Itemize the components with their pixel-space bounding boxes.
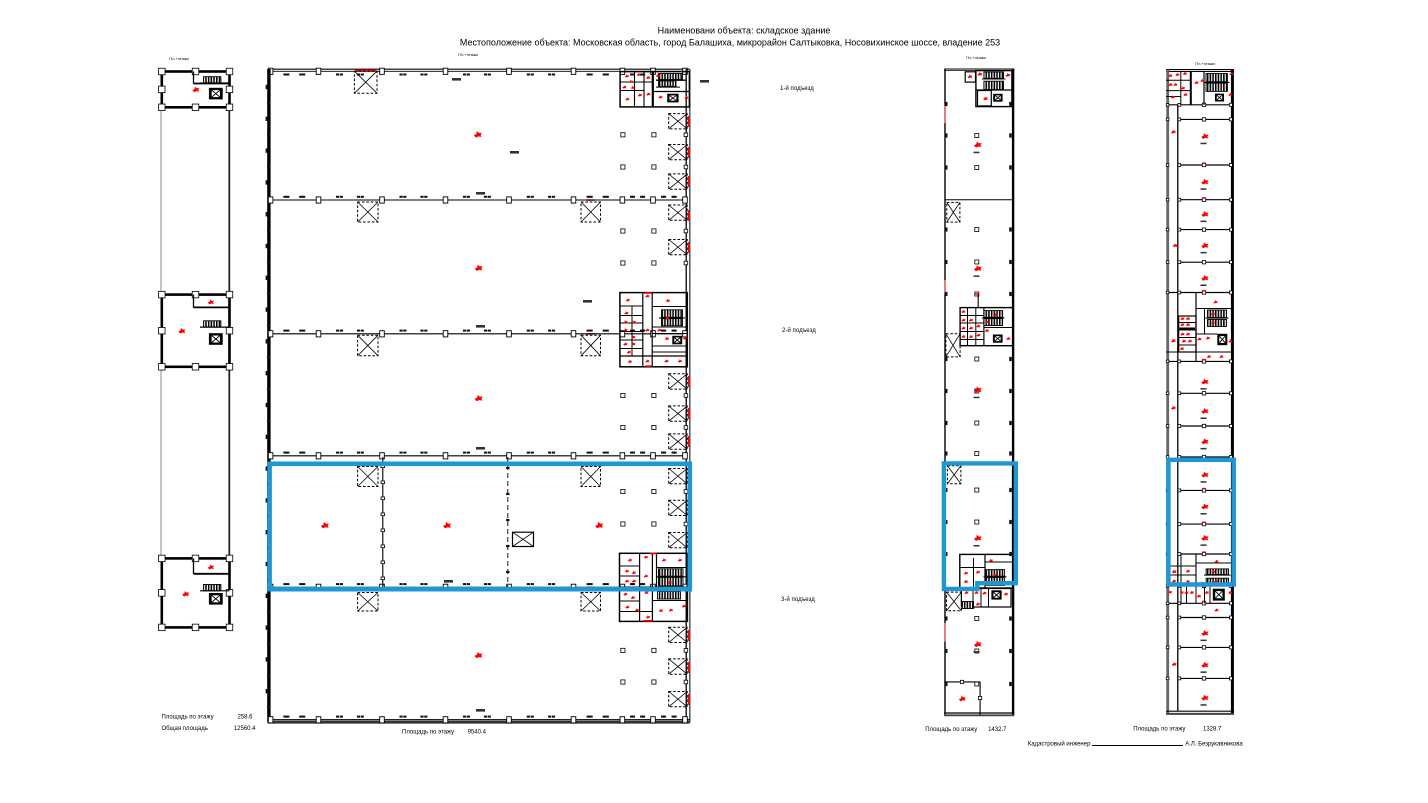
svg-text:2-й подъезд: 2-й подъезд <box>782 327 816 334</box>
svg-text:1-й подъезд: 1-й подъезд <box>780 85 814 92</box>
svg-text:Площадь по этажу: Площадь по этажу <box>402 730 454 736</box>
svg-text:Площадь по этажу: Площадь по этажу <box>1133 727 1185 733</box>
svg-text:12560.4: 12560.4 <box>234 726 256 732</box>
svg-text:1432.7: 1432.7 <box>988 727 1007 733</box>
svg-text:3-й подъезд: 3-й подъезд <box>781 596 815 603</box>
svg-text:Пл.+этажа: Пл.+этажа <box>966 55 986 60</box>
svg-text:Пл.+этажа: Пл.+этажа <box>458 52 478 57</box>
svg-text:Кадастровый инженер: Кадастровый инженер <box>1028 741 1091 748</box>
svg-text:Общая площадь: Общая площадь <box>162 726 208 732</box>
svg-text:Площадь по этажу: Площадь по этажу <box>162 715 214 721</box>
svg-text:9540.4: 9540.4 <box>468 730 487 736</box>
svg-text:Пл.+этажа: Пл.+этажа <box>169 56 189 61</box>
svg-text:Площадь по этажу: Площадь по этажу <box>925 727 977 733</box>
svg-text:258.6: 258.6 <box>238 715 254 721</box>
svg-text:Наименовани объекта: складское: Наименовани объекта: складское здание <box>658 26 831 36</box>
svg-text:Местоположение объекта: Москов: Местоположение объекта: Московская облас… <box>460 38 1000 48</box>
svg-text:Пл.+этажа: Пл.+этажа <box>1195 61 1215 66</box>
svg-text:А.Л. Безрукавникова: А.Л. Безрукавникова <box>1185 742 1243 748</box>
svg-text:1328.7: 1328.7 <box>1203 727 1222 733</box>
